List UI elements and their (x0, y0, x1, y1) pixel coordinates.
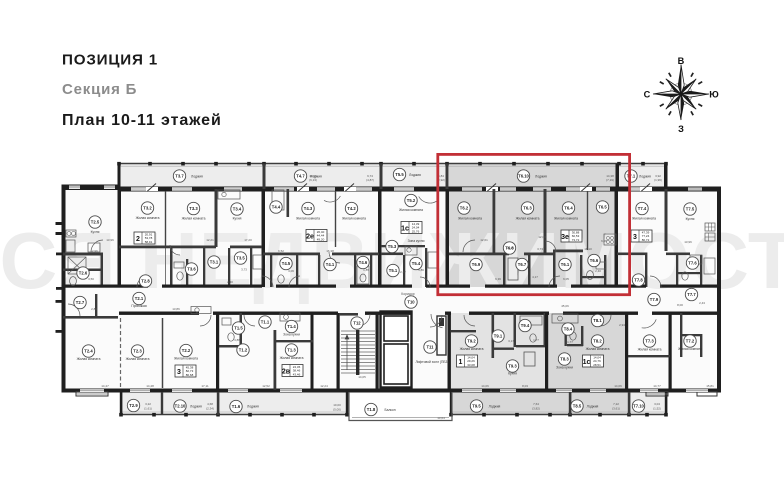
svg-text:(7,19): (7,19) (606, 178, 614, 182)
svg-text:З: З (678, 124, 684, 134)
svg-text:Лоджия: Лоджия (190, 405, 202, 409)
svg-text:ПОЗИЦИЯ 1: ПОЗИЦИЯ 1 (62, 52, 158, 69)
svg-text:Жилая комната: Жилая комната (632, 217, 656, 221)
svg-text:7,64: 7,64 (533, 402, 539, 406)
svg-text:Лоджия: Лоджия (535, 175, 547, 179)
svg-text:Т2.9: Т2.9 (129, 403, 138, 408)
svg-text:2,84: 2,84 (91, 307, 97, 311)
svg-text:Секция Б: Секция Б (62, 81, 137, 98)
svg-text:Т12: Т12 (353, 321, 361, 326)
svg-text:Т8.4: Т8.4 (564, 327, 573, 332)
svg-text:Т11: Т11 (427, 345, 435, 350)
svg-text:Т2.7: Т2.7 (76, 300, 85, 305)
svg-text:Жилая комната: Жилая комната (280, 356, 304, 360)
svg-text:Т4.6: Т4.6 (359, 260, 368, 265)
svg-text:Жилая комната: Жилая комната (458, 217, 482, 221)
svg-text:Т6.10: Т6.10 (518, 174, 529, 179)
svg-text:3: 3 (633, 234, 637, 241)
svg-text:Т2.3: Т2.3 (133, 349, 142, 354)
svg-text:Жилая комната: Жилая комната (296, 217, 320, 221)
svg-text:12,52: 12,52 (262, 384, 270, 388)
svg-text:Т1.8: Т1.8 (367, 407, 376, 412)
svg-text:80,72: 80,72 (642, 238, 650, 242)
svg-text:3е: 3е (561, 234, 569, 241)
svg-text:Т5.5: Т5.5 (395, 172, 404, 177)
svg-text:Т2.5: Т2.5 (91, 220, 100, 225)
svg-text:16,10: 16,10 (506, 246, 514, 250)
svg-text:Т4.2: Т4.2 (347, 206, 356, 211)
svg-text:14,06: 14,06 (614, 384, 622, 388)
svg-text:2,94: 2,94 (619, 323, 625, 327)
svg-text:2: 2 (136, 236, 140, 243)
svg-text:В: В (678, 56, 685, 66)
svg-text:2,40: 2,40 (595, 269, 601, 273)
svg-text:12,96: 12,96 (90, 249, 98, 253)
svg-text:Кухня: Кухня (91, 230, 100, 234)
svg-text:4,68: 4,68 (207, 402, 213, 406)
svg-text:Т2.2: Т2.2 (182, 348, 191, 353)
svg-text:Зона кухни: Зона кухни (408, 239, 425, 243)
svg-text:16,38: 16,38 (326, 249, 334, 253)
svg-text:3,17: 3,17 (508, 339, 514, 343)
svg-text:14,06: 14,06 (481, 384, 489, 388)
svg-text:6,52: 6,52 (278, 249, 284, 253)
svg-text:13,64: 13,64 (437, 416, 445, 420)
svg-text:12,21: 12,21 (206, 238, 214, 242)
svg-text:6,36: 6,36 (495, 277, 501, 281)
svg-text:13,96: 13,96 (684, 240, 692, 244)
svg-text:Жилая комната: Жилая комната (342, 217, 366, 221)
svg-text:Т3.7: Т3.7 (175, 174, 184, 179)
svg-text:Жилая комната: Жилая комната (554, 217, 578, 221)
svg-text:1с: 1с (583, 359, 591, 366)
svg-text:Т4.4: Т4.4 (272, 205, 281, 210)
svg-text:Ю: Ю (709, 90, 719, 100)
svg-text:(6,13): (6,13) (309, 178, 317, 182)
svg-text:14,47: 14,47 (101, 384, 109, 388)
svg-text:Т8.5: Т8.5 (573, 404, 582, 409)
svg-text:(4,87): (4,87) (366, 178, 374, 182)
svg-text:17,20: 17,20 (244, 238, 252, 242)
svg-text:Т9.4: Т9.4 (521, 323, 530, 328)
svg-text:2,27: 2,27 (400, 270, 406, 274)
svg-text:3,50: 3,50 (88, 277, 94, 281)
svg-text:Т8.1: Т8.1 (593, 318, 602, 323)
svg-text:Жилая комната: Жилая комната (460, 347, 484, 351)
svg-text:(3,61): (3,61) (612, 407, 620, 411)
svg-text:План 10-11 этажей: План 10-11 этажей (62, 112, 222, 129)
svg-text:1,77: 1,77 (533, 338, 539, 342)
svg-text:Т7.4: Т7.4 (638, 206, 647, 211)
svg-text:7,22: 7,22 (613, 402, 619, 406)
svg-text:5,86: 5,86 (418, 268, 424, 272)
svg-text:Лоджия: Лоджия (409, 173, 421, 177)
svg-text:Т6.3: Т6.3 (523, 206, 532, 211)
svg-text:3,73: 3,73 (241, 268, 247, 272)
svg-text:(5,00): (5,00) (333, 408, 341, 412)
svg-text:Т3.3: Т3.3 (189, 206, 198, 211)
svg-text:1: 1 (459, 359, 463, 366)
svg-text:Т1.3: Т1.3 (287, 348, 296, 353)
svg-text:Жилая комната: Жилая комната (586, 347, 610, 351)
svg-text:8,00: 8,00 (677, 303, 683, 307)
svg-text:Т2.4: Т2.4 (84, 349, 93, 354)
svg-text:2,30: 2,30 (227, 280, 233, 284)
svg-text:13,96: 13,96 (106, 238, 114, 242)
svg-text:Т7.1: Т7.1 (627, 174, 636, 179)
svg-text:Т2.8: Т2.8 (141, 279, 150, 284)
svg-text:14,48: 14,48 (146, 384, 154, 388)
svg-text:14,77: 14,77 (653, 384, 661, 388)
svg-text:Коридор: Коридор (401, 292, 415, 296)
svg-text:Т5.2: Т5.2 (407, 198, 416, 203)
svg-text:Т2.1: Т2.1 (135, 296, 144, 301)
svg-text:Т9.1: Т9.1 (494, 334, 503, 339)
svg-text:16,10: 16,10 (584, 247, 592, 251)
svg-text:Т7.3: Т7.3 (645, 339, 654, 344)
svg-text:Т5.3: Т5.3 (388, 244, 397, 249)
svg-text:Лоджия: Лоджия (247, 405, 259, 409)
svg-text:(2,34): (2,34) (206, 407, 214, 411)
svg-text:6,06: 6,06 (601, 239, 607, 243)
svg-text:Т3.6: Т3.6 (187, 267, 196, 272)
svg-text:Т6.7: Т6.7 (518, 262, 527, 267)
svg-text:Жилая комната: Жилая комната (638, 348, 662, 352)
svg-text:Кухня: Кухня (686, 217, 695, 221)
svg-text:12,24: 12,24 (320, 384, 328, 388)
svg-text:Жилая комната: Жилая комната (77, 357, 101, 361)
svg-text:Т7.8: Т7.8 (634, 278, 643, 283)
svg-text:Балкон: Балкон (384, 408, 395, 412)
svg-text:15,81: 15,81 (706, 384, 714, 388)
svg-text:3,86: 3,86 (234, 338, 240, 342)
svg-text:1,77: 1,77 (567, 340, 573, 344)
svg-text:3: 3 (177, 369, 181, 376)
svg-text:17,11: 17,11 (201, 384, 209, 388)
svg-text:Т6.6: Т6.6 (590, 258, 599, 263)
svg-text:Т6.9: Т6.9 (472, 262, 481, 267)
svg-text:3,22: 3,22 (145, 402, 151, 406)
svg-text:Т6.2: Т6.2 (460, 206, 469, 211)
svg-text:Жилая комната: Жилая комната (182, 217, 206, 221)
svg-text:Т7.2: Т7.2 (686, 339, 695, 344)
svg-text:Т7.6: Т7.6 (688, 261, 697, 266)
svg-text:Прихожая: Прихожая (131, 304, 146, 308)
svg-text:Зона кухни: Зона кухни (556, 366, 573, 370)
svg-text:Т10: Т10 (407, 300, 415, 305)
svg-text:Жилая комната: Жилая комната (399, 208, 423, 212)
svg-text:Т5.1: Т5.1 (389, 268, 398, 273)
svg-text:Жилая комната: Жилая комната (678, 347, 702, 351)
svg-text:Лоджия: Лоджия (191, 175, 203, 179)
svg-text:28,51: 28,51 (593, 363, 601, 367)
svg-text:Т9.5: Т9.5 (472, 404, 481, 409)
svg-text:14,05: 14,05 (358, 375, 366, 379)
svg-text:3,06: 3,06 (288, 269, 294, 273)
svg-text:4,17: 4,17 (532, 275, 538, 279)
svg-text:Т6.5: Т6.5 (598, 205, 607, 210)
svg-text:2е: 2е (306, 233, 314, 240)
svg-text:33,08: 33,08 (467, 363, 475, 367)
svg-text:Т7.9: Т7.9 (650, 297, 659, 302)
svg-text:Кухня: Кухня (508, 372, 517, 376)
svg-text:Лоджия: Лоджия (489, 405, 501, 409)
svg-text:12,03: 12,03 (538, 235, 546, 239)
svg-text:Т9.2: Т9.2 (467, 339, 476, 344)
svg-text:Т2.6: Т2.6 (79, 271, 88, 276)
svg-text:25,76: 25,76 (412, 229, 420, 233)
svg-text:Кухня: Кухня (233, 217, 242, 221)
svg-text:Т2.10: Т2.10 (175, 404, 186, 409)
svg-text:Т8.2: Т8.2 (593, 339, 602, 344)
svg-text:8,03: 8,03 (522, 384, 528, 388)
svg-text:Т3.1: Т3.1 (210, 260, 219, 265)
svg-text:Т1.4: Т1.4 (287, 324, 296, 329)
svg-text:Т3.2: Т3.2 (143, 206, 152, 211)
svg-text:6,05: 6,05 (563, 277, 569, 281)
svg-text:Т1.5: Т1.5 (234, 326, 243, 331)
svg-text:2,43: 2,43 (699, 301, 705, 305)
svg-text:43,46: 43,46 (293, 372, 301, 376)
svg-text:86,68: 86,68 (186, 373, 194, 377)
svg-text:13,86: 13,86 (172, 307, 180, 311)
svg-text:Зона кухни: Зона кухни (283, 333, 300, 337)
svg-text:10,00: 10,00 (333, 403, 341, 407)
svg-text:45,06: 45,06 (561, 304, 569, 308)
svg-text:Т8.3: Т8.3 (560, 357, 569, 362)
svg-text:3,04: 3,04 (654, 402, 660, 406)
svg-text:Т1.6: Т1.6 (232, 404, 241, 409)
svg-text:С: С (644, 90, 651, 100)
svg-text:Лифтовой холл (ПБ3): Лифтовой холл (ПБ3) (416, 360, 449, 364)
svg-text:Т6.4: Т6.4 (564, 206, 573, 211)
svg-text:Т7.7: Т7.7 (687, 292, 696, 297)
svg-text:2в: 2в (282, 368, 291, 375)
svg-text:Т6.1: Т6.1 (561, 262, 570, 267)
svg-text:Т3.5: Т3.5 (236, 256, 245, 261)
svg-text:Т1.1: Т1.1 (261, 320, 270, 325)
svg-text:49,20: 49,20 (317, 237, 325, 241)
svg-text:Жилая комната: Жилая комната (174, 357, 198, 361)
svg-text:Т4.5: Т4.5 (282, 261, 291, 266)
svg-text:Т4.3: Т4.3 (304, 206, 313, 211)
svg-text:(3,82): (3,82) (532, 407, 540, 411)
svg-text:3,73: 3,73 (537, 247, 543, 251)
svg-text:Т7.5: Т7.5 (686, 207, 695, 212)
svg-text:1,85: 1,85 (363, 268, 369, 272)
svg-text:Лоджия: Лоджия (639, 175, 651, 179)
svg-text:Т4.7: Т4.7 (296, 174, 305, 179)
svg-text:58,91: 58,91 (145, 240, 153, 244)
svg-text:1с: 1с (401, 225, 409, 232)
svg-text:Жилая комната: Жилая комната (136, 216, 160, 220)
svg-text:Жилая комната: Жилая комната (126, 357, 150, 361)
svg-text:Т1.2: Т1.2 (239, 348, 248, 353)
svg-text:(1,52): (1,52) (653, 407, 661, 411)
svg-text:Жилая комната: Жилая комната (516, 217, 540, 221)
svg-text:73,72: 73,72 (572, 238, 580, 242)
svg-text:Т3.4: Т3.4 (233, 207, 242, 212)
svg-text:Т9.3: Т9.3 (508, 364, 517, 369)
svg-text:Т4.1: Т4.1 (326, 262, 335, 267)
svg-text:(1,61): (1,61) (144, 407, 152, 411)
svg-text:Лоджия: Лоджия (587, 405, 599, 409)
svg-text:Т5.4: Т5.4 (412, 261, 421, 266)
svg-text:Т7.10: Т7.10 (633, 404, 644, 409)
svg-text:12,61: 12,61 (480, 238, 488, 242)
svg-text:(1,96): (1,96) (654, 178, 662, 182)
